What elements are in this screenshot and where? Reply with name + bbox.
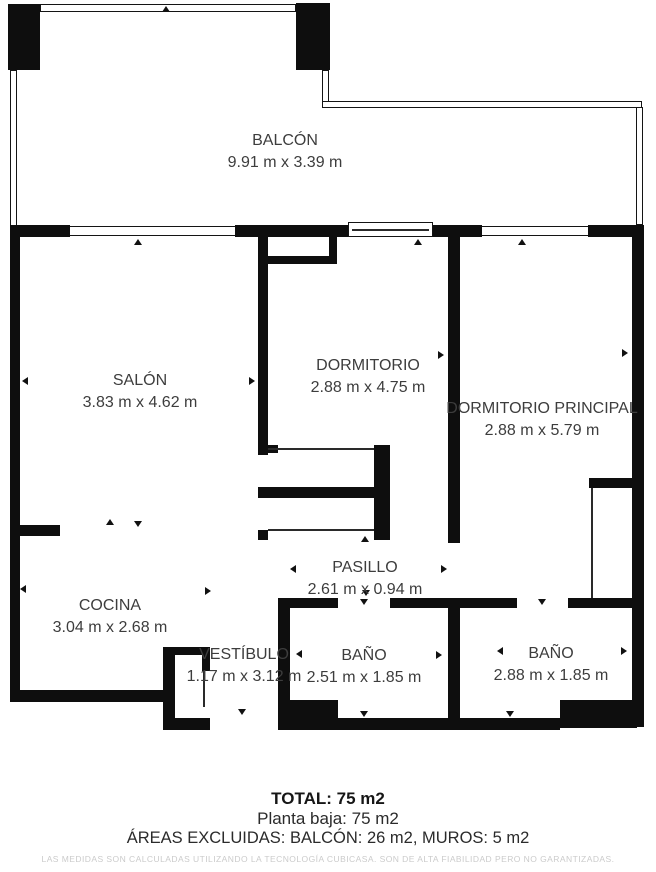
measure-arrow [20, 585, 26, 593]
measure-arrow [134, 521, 142, 527]
measure-arrow [238, 709, 246, 715]
room-label-dormitorio: DORMITORIO 2.88 m x 4.75 m [311, 355, 426, 399]
room-name: VESTÍBULO [187, 644, 302, 666]
measure-arrow [290, 565, 296, 573]
salon-window [70, 226, 235, 236]
measure-arrow [538, 599, 546, 605]
floor-plan: BALCÓN 9.91 m x 3.39 m SALÓN 3.83 m x 4.… [0, 0, 656, 872]
wall-dormitorio-recess-v [329, 237, 337, 263]
room-dimensions: 3.04 m x 2.68 m [53, 617, 168, 639]
balcony-railing-left [10, 70, 17, 226]
measure-arrow [22, 377, 28, 385]
room-name: BALCÓN [228, 130, 343, 152]
room-name: SALÓN [83, 370, 198, 392]
measure-arrow [621, 647, 627, 655]
wall-top-4 [588, 225, 644, 237]
room-dimensions: 9.91 m x 3.39 m [228, 152, 343, 174]
principal-window [482, 226, 588, 236]
room-dimensions: 3.83 m x 4.62 m [83, 392, 198, 414]
total-area-text: TOTAL: 75 m2 [0, 789, 656, 809]
room-dimensions: 2.88 m x 5.79 m [446, 420, 637, 442]
balcony-railing-right-lower [636, 107, 643, 225]
excluded-areas-text: ÁREAS EXCLUIDAS: BALCÓN: 26 m2, MUROS: 5… [0, 829, 656, 848]
measure-arrow [436, 651, 442, 659]
room-label-bano-2: BAÑO 2.88 m x 1.85 m [494, 643, 609, 687]
room-label-dormitorio-principal: DORMITORIO PRINCIPAL 2.88 m x 5.79 m [446, 398, 637, 442]
room-dimensions: 2.88 m x 4.75 m [311, 377, 426, 399]
room-dimensions: 1.17 m x 3.12 m [187, 666, 302, 688]
wall-dormitorio-principal [448, 237, 460, 543]
wall-salon-dormitorio [258, 237, 268, 455]
balcony-railing-right-horizontal [322, 101, 642, 108]
measure-arrow [518, 239, 526, 245]
room-dimensions: 2.88 m x 1.85 m [494, 665, 609, 687]
measure-arrow [205, 587, 211, 595]
room-label-salon: SALÓN 3.83 m x 4.62 m [83, 370, 198, 414]
measure-arrow [106, 519, 114, 525]
wall-dormitorio-recess-h [266, 256, 337, 264]
wall-bano-divider [448, 598, 460, 728]
room-dimensions: 2.61 m x 0.94 m [308, 579, 423, 601]
measure-arrow [162, 6, 170, 12]
room-label-cocina: COCINA 3.04 m x 2.68 m [53, 595, 168, 639]
wall-banos-bottom [338, 718, 560, 730]
wall-salon-cocina-stub [18, 525, 60, 536]
closet-front-bottom-line [268, 529, 374, 531]
balcony-pillar-right [296, 3, 330, 70]
wall-top-1 [10, 225, 70, 237]
wall-left [10, 237, 20, 702]
wall-closet-mid [258, 487, 374, 498]
room-name: BAÑO [494, 643, 609, 665]
room-label-balcon: BALCÓN 9.91 m x 3.39 m [228, 130, 343, 174]
wall-closet-stub-bottom [258, 530, 268, 540]
disclaimer-text: LAS MEDIDAS SON CALCULADAS UTILIZANDO LA… [0, 854, 656, 864]
measure-arrow [134, 239, 142, 245]
room-label-pasillo: PASILLO 2.61 m x 0.94 m [308, 557, 423, 601]
room-label-vestibulo: VESTÍBULO 1.17 m x 3.12 m [187, 644, 302, 688]
wall-top-2 [235, 225, 348, 237]
room-name: DORMITORIO PRINCIPAL [446, 398, 637, 420]
wall-right [632, 237, 644, 727]
room-name: BAÑO [307, 645, 422, 667]
measure-arrow [414, 239, 422, 245]
dormitorio-balcony-door-line [352, 229, 429, 231]
measure-arrow [249, 377, 255, 385]
measure-arrow [438, 351, 444, 359]
wall-vestibulo-bottom [163, 718, 210, 730]
measure-arrow [360, 711, 368, 717]
wall-top-3 [433, 225, 482, 237]
room-name: COCINA [53, 595, 168, 617]
balcony-pillar-left [8, 4, 40, 70]
measure-arrow [361, 536, 369, 542]
wall-entrance-block [278, 700, 338, 730]
measure-arrow [506, 711, 514, 717]
measure-arrow [441, 565, 447, 573]
room-name: DORMITORIO [311, 355, 426, 377]
floor-area-text: Planta baja: 75 m2 [0, 809, 656, 829]
wall-banos-top-3 [568, 598, 632, 608]
wall-principal-closet-top [589, 478, 632, 488]
room-dimensions: 2.51 m x 1.85 m [307, 667, 422, 689]
closet-front-top-line [268, 448, 374, 450]
room-name: PASILLO [308, 557, 423, 579]
wall-bano2-block [560, 700, 637, 728]
wall-cocina-bottom [10, 690, 165, 702]
room-label-bano-1: BAÑO 2.51 m x 1.85 m [307, 645, 422, 689]
wall-closet-right [374, 445, 390, 540]
measure-arrow [622, 349, 628, 357]
principal-closet-front-line [591, 488, 593, 598]
